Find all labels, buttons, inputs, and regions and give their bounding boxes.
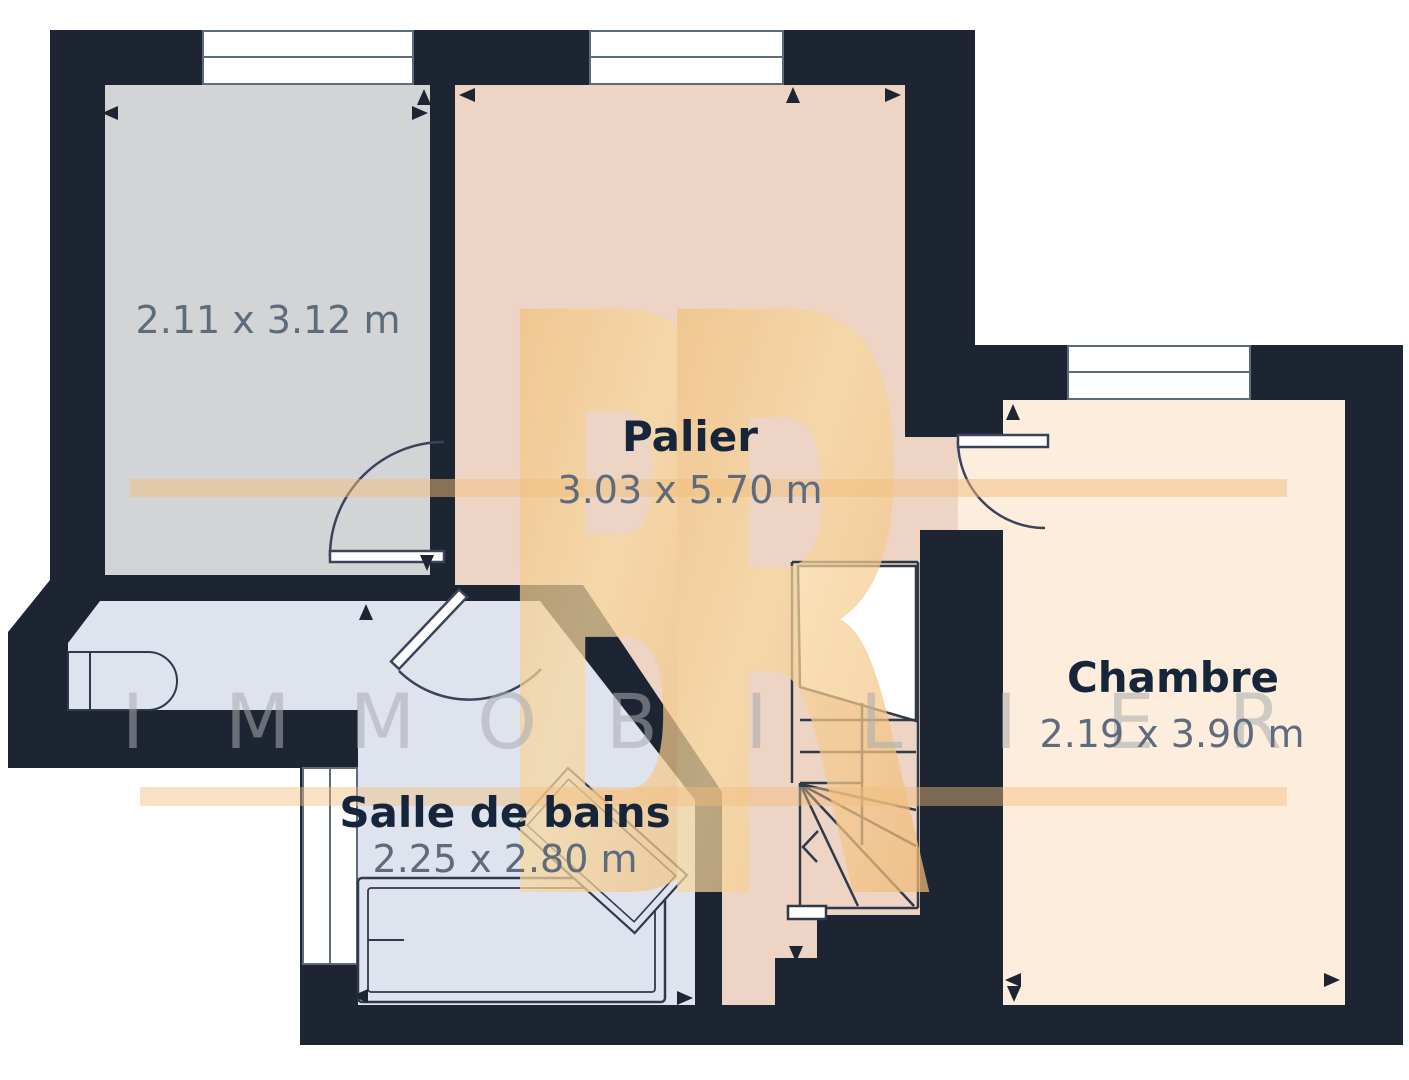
floor-plan-canvas: BR IMMOBILIER 2.11 x 3.12 m Palier 3.03 …	[0, 0, 1409, 1080]
window-chambre	[1068, 346, 1250, 399]
floor-plan: BR IMMOBILIER 2.11 x 3.12 m Palier 3.03 …	[0, 0, 1409, 1080]
brand-word-letter: B	[606, 677, 658, 766]
salle-de-bains-name: Salle de bains	[339, 788, 670, 837]
brand-word-letter: O	[477, 677, 537, 766]
chambre-dims: 2.19 x 3.90 m	[1040, 712, 1305, 756]
chambre-name: Chambre	[1067, 653, 1279, 702]
brand-monogram-letter: R	[642, 149, 937, 1080]
room-top-left-dims: 2.11 x 3.12 m	[136, 298, 401, 342]
brand-monogram: BR	[488, 149, 937, 1080]
brand-word-letter: I	[122, 677, 144, 766]
brand-stripe-bottom	[140, 787, 1287, 806]
door-leaf	[958, 435, 1048, 447]
brand-word-letter: I	[995, 677, 1017, 766]
brand-word-letter: L	[860, 677, 902, 766]
brand-word-letter: M	[350, 677, 416, 766]
salle-de-bains-dims: 2.25 x 2.80 m	[373, 837, 638, 881]
palier-name: Palier	[622, 412, 758, 461]
brand-word-letter: I	[745, 677, 767, 766]
window-top-left-room	[203, 31, 413, 84]
window-palier	[590, 31, 783, 84]
brand-word-letter: M	[225, 677, 291, 766]
palier-dims: 3.03 x 5.70 m	[558, 468, 823, 512]
